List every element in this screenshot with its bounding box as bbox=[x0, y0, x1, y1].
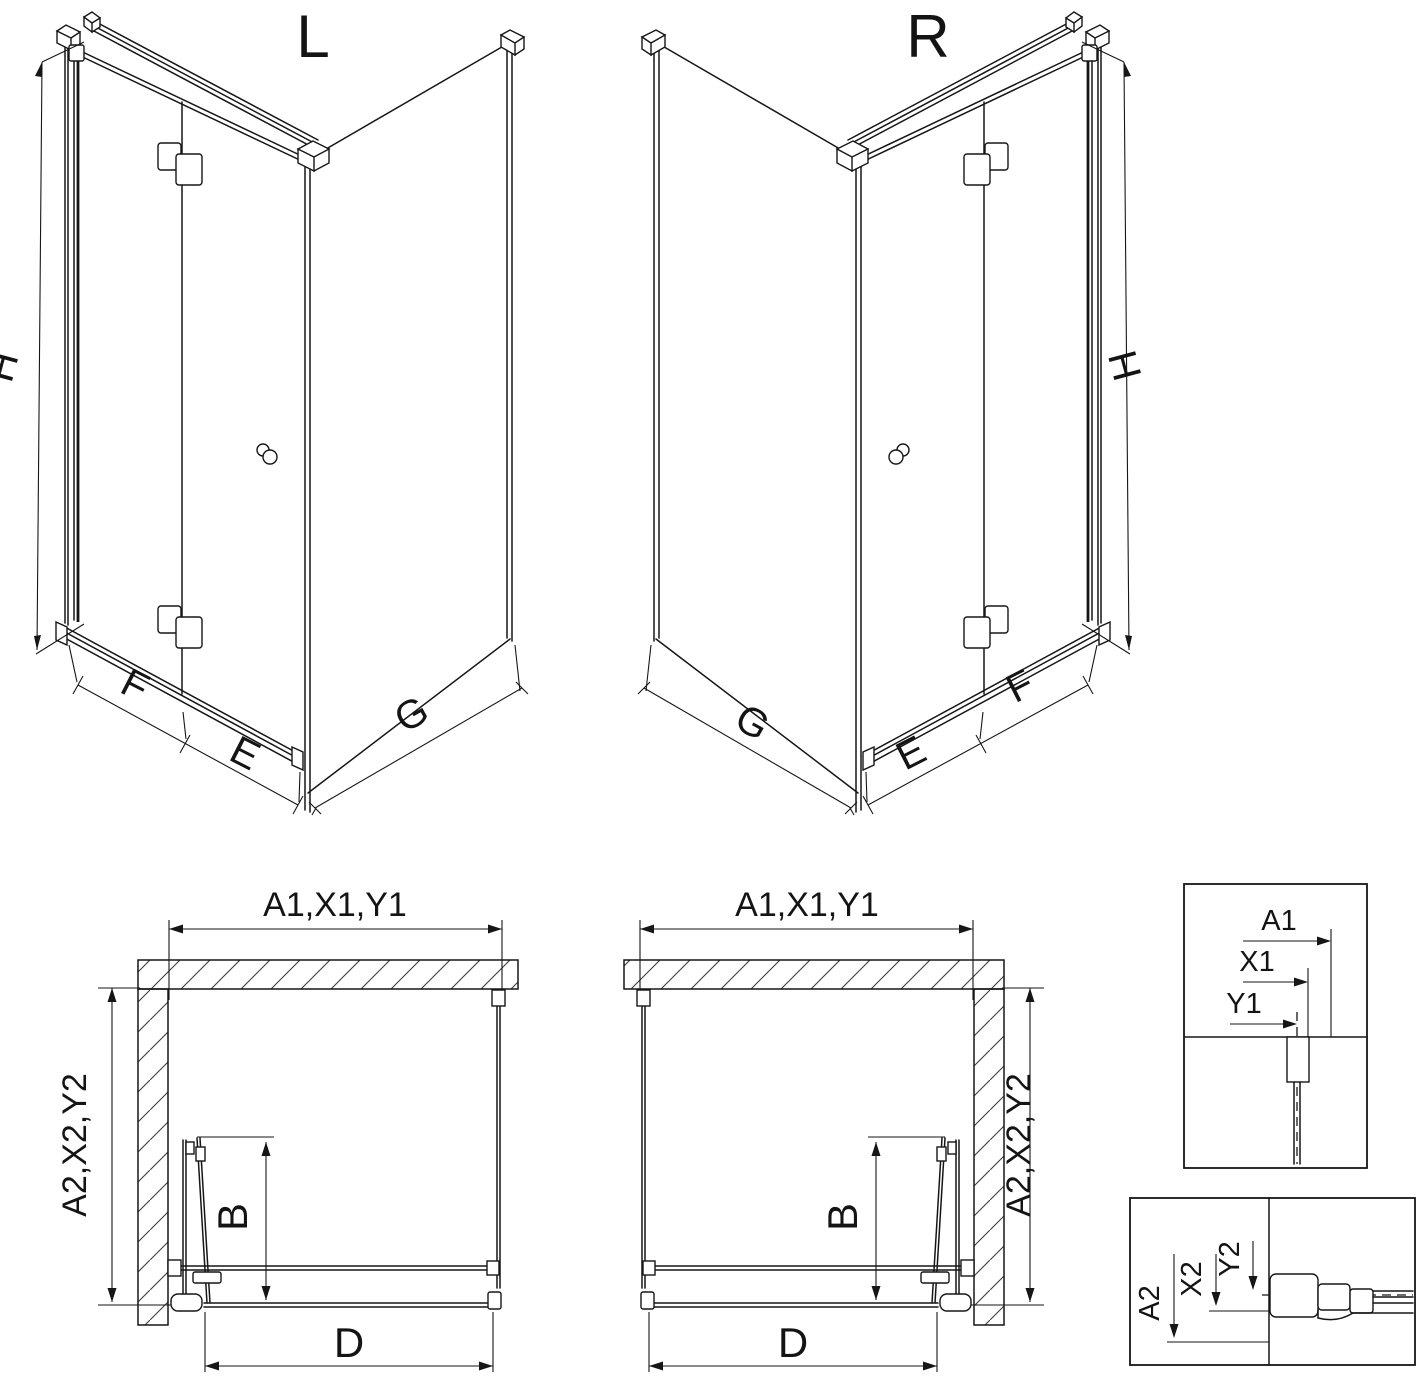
detail-label-a1: A1 bbox=[1261, 905, 1296, 937]
detail-bottom-profile-body bbox=[1270, 1274, 1318, 1317]
variant-label-left: L bbox=[296, 3, 329, 70]
detail-label-y2: Y2 bbox=[1214, 1241, 1246, 1276]
detail-label-a2: A2 bbox=[1134, 1285, 1166, 1320]
iso-view-right: R H G E F bbox=[638, 3, 1150, 815]
height-dim-label-right: H bbox=[1100, 346, 1150, 385]
detail-label-y1: Y1 bbox=[1226, 988, 1261, 1020]
wall-hatched-top-left-plan bbox=[138, 960, 518, 989]
iso-geometry-left bbox=[34, 12, 528, 815]
iso-geometry-right bbox=[638, 12, 1132, 815]
detail-label-x2: X2 bbox=[1176, 1261, 1208, 1296]
plan-top-dim-label-right: A1,X1,Y1 bbox=[735, 886, 879, 924]
detail-label-x1: X1 bbox=[1239, 946, 1274, 978]
detail-top-wall-bracket bbox=[1287, 1037, 1309, 1082]
plan-view-left: A1,X1,Y1 A2,X2,Y2 B D bbox=[56, 886, 518, 1372]
plan-side-dim-label-left: A2,X2,Y2 bbox=[56, 1073, 94, 1217]
door-dim-label-left: E bbox=[223, 728, 267, 779]
wall-hatched-side-left-plan bbox=[138, 989, 168, 1325]
technical-drawing-page: L H F E G R H G E F A1,X1,Y1 A2,X2,Y2 B … bbox=[0, 0, 1426, 1397]
plan-door-dim-label-left: B bbox=[209, 1203, 256, 1231]
plan-view-right: A1,X1,Y1 A2,X2,Y2 B D bbox=[624, 886, 1044, 1372]
wall-hatched-top-right-plan bbox=[624, 960, 1004, 989]
door-dim-label-right: E bbox=[889, 728, 933, 779]
detail-view-wall-profile-bottom: A2 X2 Y2 bbox=[1130, 1198, 1415, 1365]
detail-bottom-profile-clamp bbox=[1350, 1289, 1373, 1313]
plan-door-dim-label-right: B bbox=[819, 1203, 866, 1231]
plan-width-dim-label-left: D bbox=[334, 1319, 364, 1366]
iso-view-left: L H F E G bbox=[0, 3, 528, 815]
detail-view-wall-profile-top: A1 X1 Y1 bbox=[1184, 884, 1367, 1168]
variant-label-right: R bbox=[906, 3, 949, 70]
detail-bottom-profile-step bbox=[1318, 1284, 1350, 1310]
side-dim-label-left: G bbox=[387, 688, 436, 742]
detail-bottom-profile-curve bbox=[1318, 1310, 1353, 1320]
height-dim-label-left: H bbox=[0, 347, 27, 386]
technical-drawing-canvas: L H F E G R H G E F A1,X1,Y1 A2,X2,Y2 B … bbox=[0, 0, 1426, 1397]
plan-width-dim-label-right: D bbox=[778, 1319, 808, 1366]
plan-side-dim-label-right: A2,X2,Y2 bbox=[1000, 1073, 1038, 1217]
plan-top-dim-label-left: A1,X1,Y1 bbox=[263, 886, 407, 924]
